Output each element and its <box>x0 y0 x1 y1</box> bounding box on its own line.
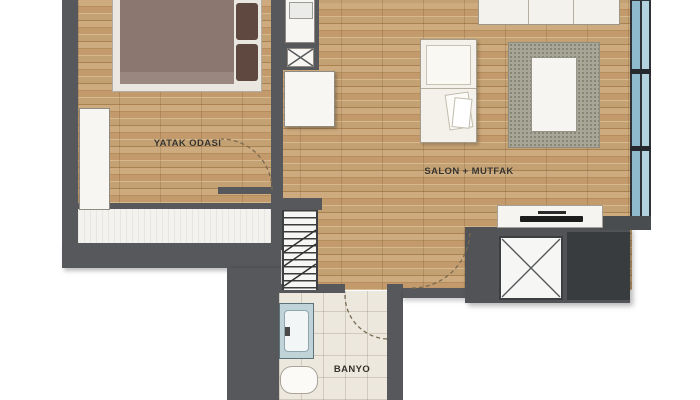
kitchen-cabinet-crossed <box>287 48 314 67</box>
sofa <box>478 0 620 25</box>
bath-faucet <box>285 327 290 336</box>
kitchen-cabinet-large <box>284 71 335 127</box>
toilet <box>280 366 318 394</box>
sofa-seam <box>573 0 574 24</box>
wall-bathroom-right <box>387 284 403 400</box>
window-mullion <box>630 146 651 151</box>
wall-left <box>62 0 78 243</box>
window-mullion <box>630 69 651 74</box>
wall-bedroom-south <box>218 187 277 194</box>
service-block <box>567 232 630 300</box>
armchair-cushion <box>426 45 471 85</box>
kitchen-cabinet-sink <box>285 0 315 43</box>
wall-bottom-band <box>62 243 281 268</box>
living-kitchen-label: SALON + MUTFAK <box>409 166 529 177</box>
bed-blanket <box>120 0 234 84</box>
bedroom-label: YATAK ODASI <box>130 138 245 149</box>
tv-soundbar <box>538 211 566 214</box>
armchair-throw <box>451 97 472 129</box>
balcony-strip <box>78 208 273 243</box>
armchair <box>420 39 477 143</box>
bathroom-label: BANYO <box>322 364 382 375</box>
elevator-shaft <box>499 236 563 300</box>
window-glass-outer <box>642 1 649 217</box>
tv-console <box>497 205 603 228</box>
bed <box>112 0 262 92</box>
floor-plan: YATAK ODASI SALON + MUTFAK BANYO <box>0 0 700 400</box>
kitchen-sink <box>289 2 313 19</box>
bed-pillow <box>236 44 258 81</box>
window-sill-block <box>600 216 651 230</box>
window-glass-inner <box>632 1 640 217</box>
stairs <box>282 210 318 290</box>
bath-vanity <box>279 303 314 359</box>
armchair-seam <box>421 88 476 89</box>
tv-screen <box>520 216 583 222</box>
wardrobe <box>79 108 110 210</box>
bed-pillow <box>236 3 258 40</box>
coffee-table <box>531 57 577 132</box>
wall-stairs-top <box>271 198 322 210</box>
window-band <box>630 0 651 218</box>
sofa-seam <box>528 0 529 24</box>
wall-bath-left-block <box>227 268 281 400</box>
